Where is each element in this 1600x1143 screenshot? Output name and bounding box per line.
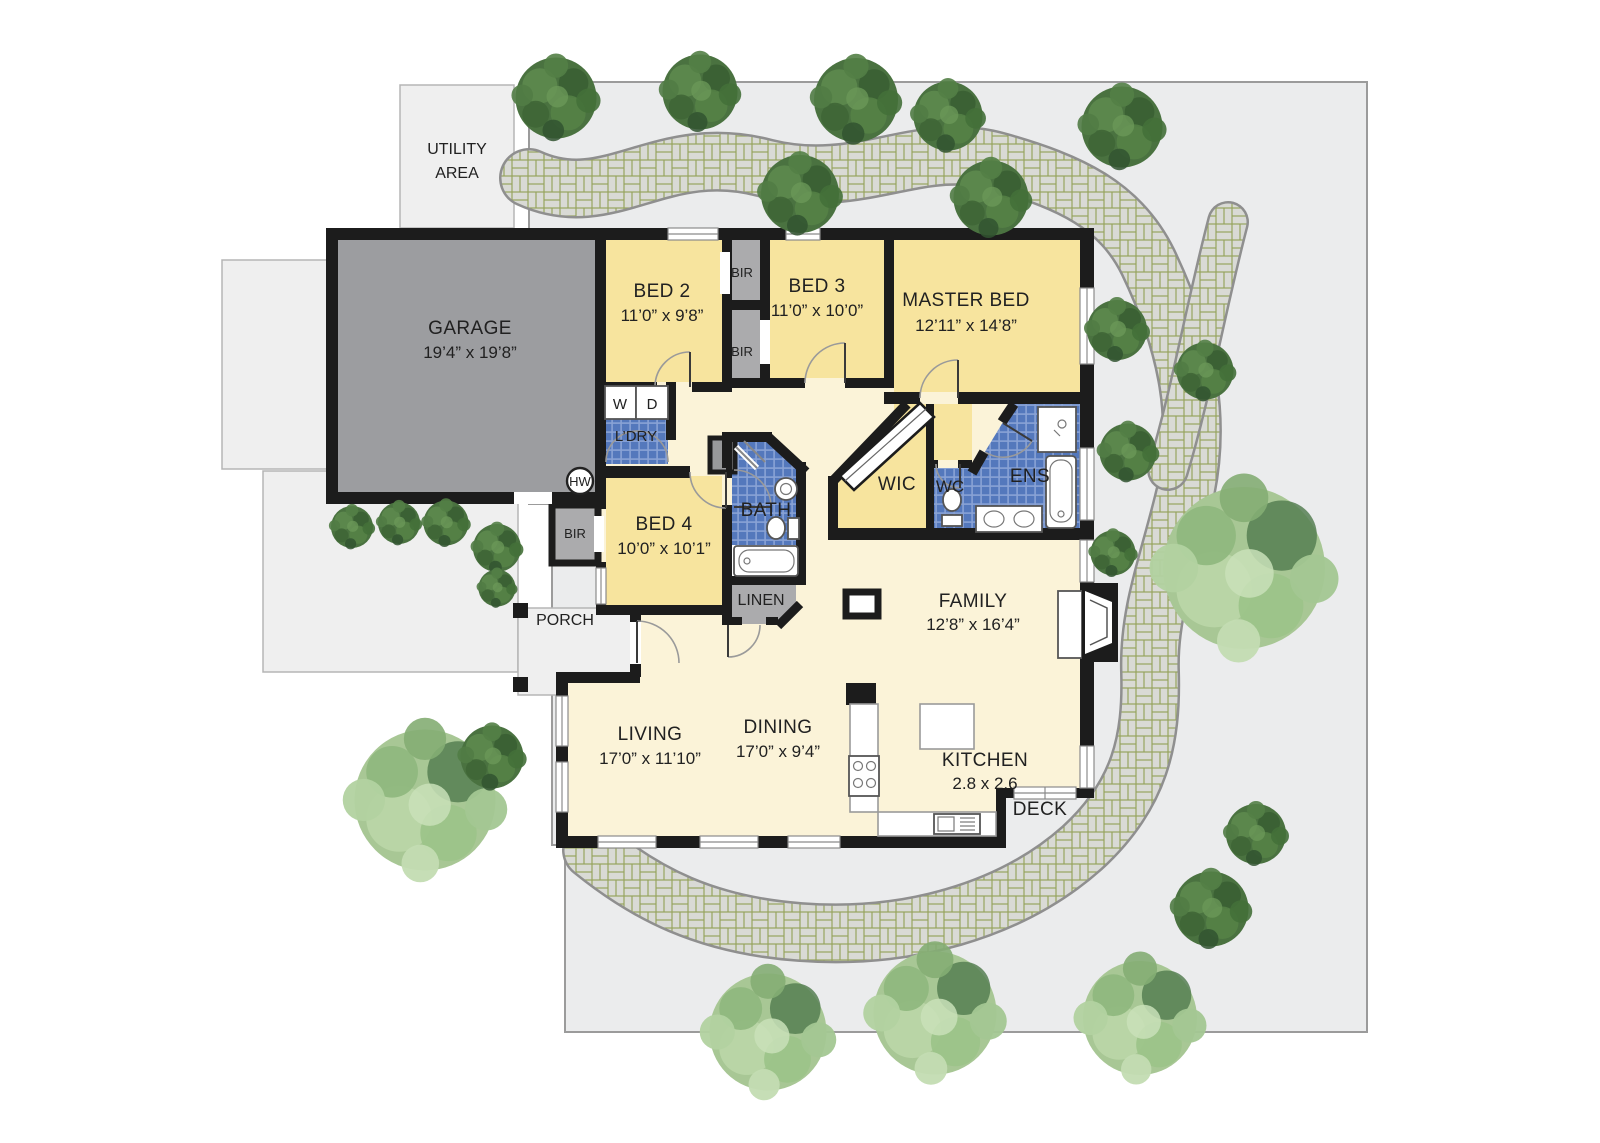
window bbox=[596, 568, 606, 604]
master-bed-label: MASTER BED bbox=[902, 290, 1030, 311]
window bbox=[1080, 448, 1094, 520]
bathtub-icon bbox=[734, 546, 798, 576]
master-bed-dims: 12’11” x 14’8” bbox=[915, 316, 1017, 335]
bed3-label: BED 3 bbox=[789, 276, 846, 297]
wc-label: WC bbox=[936, 477, 964, 496]
dryer-label: D bbox=[647, 396, 658, 413]
window bbox=[598, 836, 656, 848]
bathtub-icon bbox=[1046, 456, 1076, 528]
window bbox=[668, 228, 718, 240]
window bbox=[788, 836, 840, 848]
ens-label: ENS bbox=[1010, 466, 1050, 487]
laundry-label: L’DRY bbox=[615, 428, 657, 445]
floor-plan-page: UTILITY AREA GARAGE 19’4” x 19’8” BED 2 … bbox=[0, 0, 1600, 1143]
bir-label-top: BIR bbox=[731, 265, 753, 280]
washer-label: W bbox=[613, 396, 628, 413]
floor-plan-canvas: UTILITY AREA GARAGE 19’4” x 19’8” BED 2 … bbox=[0, 0, 1600, 1143]
family-label: FAMILY bbox=[939, 591, 1008, 612]
sink-icon bbox=[934, 814, 980, 834]
deck-label: DECK bbox=[1013, 799, 1067, 820]
porch-post-top bbox=[513, 603, 528, 618]
window bbox=[556, 762, 568, 812]
kitchen-post bbox=[846, 683, 876, 705]
porch-label: PORCH bbox=[536, 612, 594, 629]
linen-label: LINEN bbox=[737, 592, 784, 609]
bir-opening bbox=[760, 320, 770, 364]
hot-water-label: HW bbox=[569, 474, 591, 489]
kitchen-label: KITCHEN bbox=[942, 750, 1028, 771]
garage-door-opening bbox=[514, 492, 552, 504]
kitchen-dims: 2.8 x 2.6 bbox=[952, 774, 1017, 793]
utility-label-2: AREA bbox=[435, 165, 479, 182]
basin-icon bbox=[775, 478, 797, 500]
vanity-icon bbox=[976, 506, 1042, 532]
wic-label: WIC bbox=[878, 474, 916, 495]
garage-dims: 19’4” x 19’8” bbox=[423, 343, 517, 362]
family-dims: 12’8” x 16’4” bbox=[926, 615, 1020, 634]
window bbox=[556, 696, 568, 746]
shower-icon bbox=[1038, 407, 1076, 452]
utility-label: UTILITY bbox=[427, 141, 487, 158]
bed2-label: BED 2 bbox=[634, 281, 691, 302]
bed2-dims: 11’0” x 9’8” bbox=[621, 306, 704, 325]
dining-label: DINING bbox=[744, 717, 813, 738]
side-pad bbox=[222, 260, 330, 469]
hall-post bbox=[846, 592, 878, 616]
fireplace-icon bbox=[1058, 583, 1118, 662]
bir-label-bed4: BIR bbox=[564, 526, 586, 541]
stove-icon bbox=[849, 756, 879, 796]
garage-label: GARAGE bbox=[428, 318, 512, 339]
bed4-label: BED 4 bbox=[636, 514, 693, 535]
bir-opening bbox=[594, 516, 604, 552]
deck-sliding-door bbox=[1014, 787, 1076, 799]
bir-label-mid: BIR bbox=[731, 344, 753, 359]
bed3-dims: 11’0” x 10’0” bbox=[771, 301, 864, 320]
bed4-dims: 10’0” x 10’1” bbox=[617, 539, 711, 558]
bir-opening bbox=[720, 252, 730, 294]
window bbox=[1080, 746, 1094, 788]
front-door-opening bbox=[630, 622, 641, 664]
living-label: LIVING bbox=[618, 724, 683, 745]
garage-room bbox=[338, 240, 595, 492]
bath-label: BATH bbox=[741, 500, 792, 521]
dining-dims: 17’0” x 9’4” bbox=[736, 742, 820, 761]
living-dims: 17’0” x 11’10” bbox=[599, 749, 701, 768]
porch-post-bottom bbox=[513, 677, 528, 692]
window bbox=[700, 836, 758, 848]
kitchen-island bbox=[920, 704, 974, 749]
